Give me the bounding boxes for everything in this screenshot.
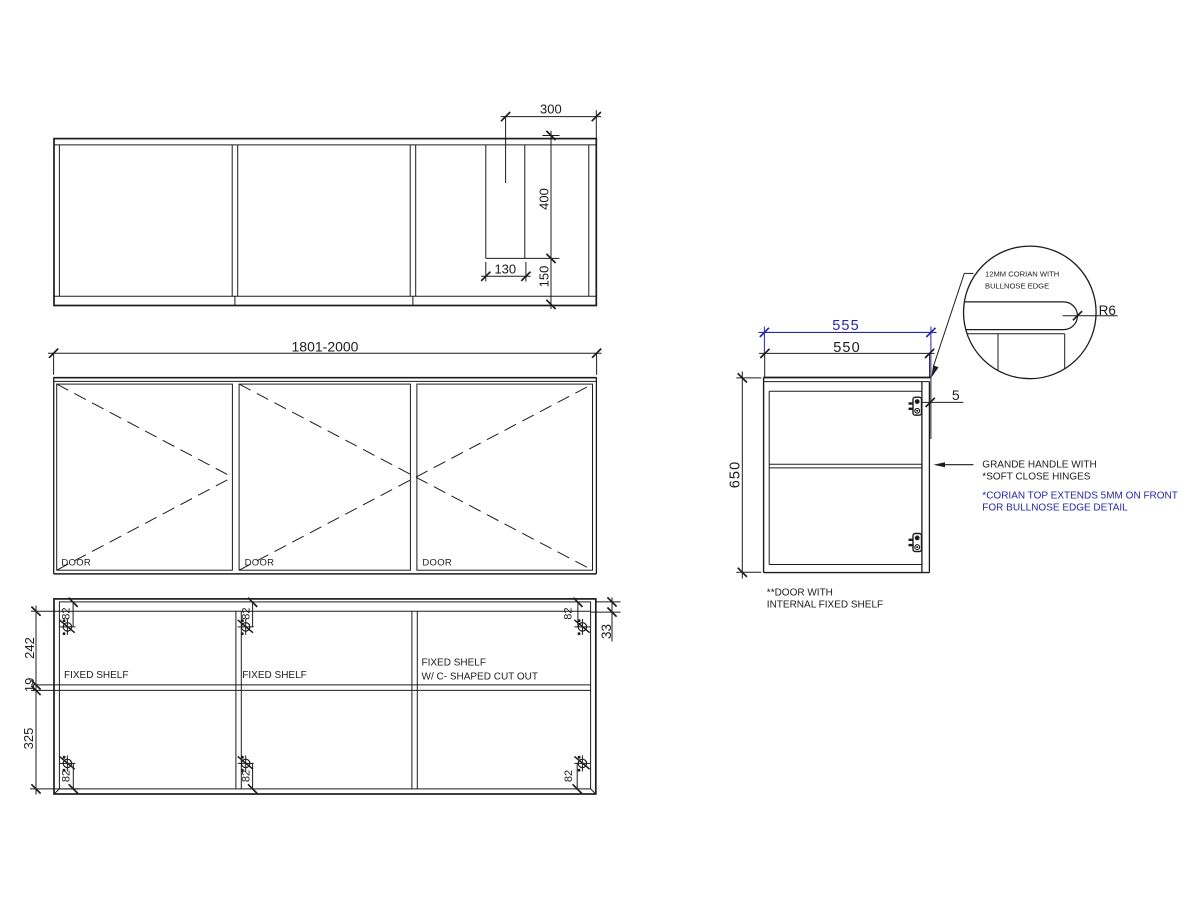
svg-text:130: 130 xyxy=(494,262,516,277)
svg-text:5: 5 xyxy=(952,387,960,403)
svg-text:242: 242 xyxy=(22,637,37,659)
svg-text:R6: R6 xyxy=(1099,303,1116,318)
svg-text:82: 82 xyxy=(563,770,575,782)
svg-text:650: 650 xyxy=(728,461,744,489)
svg-text:1801-2000: 1801-2000 xyxy=(292,339,359,355)
svg-text:33: 33 xyxy=(599,624,614,639)
svg-text:DOOR: DOOR xyxy=(61,557,91,568)
svg-text:BULLNOSE EDGE: BULLNOSE EDGE xyxy=(985,282,1049,291)
svg-text:FIXED SHELF: FIXED SHELF xyxy=(64,670,128,681)
svg-text:FOR BULLNOSE EDGE DETAIL: FOR BULLNOSE EDGE DETAIL xyxy=(982,503,1128,514)
svg-text:GRANDE HANDLE WITH: GRANDE HANDLE WITH xyxy=(982,459,1096,470)
svg-text:300: 300 xyxy=(540,102,562,117)
svg-text:400: 400 xyxy=(537,188,552,210)
svg-text:150: 150 xyxy=(537,266,552,288)
svg-text:82: 82 xyxy=(60,607,72,619)
svg-text:**DOOR WITH: **DOOR WITH xyxy=(767,587,833,598)
svg-text:W/ C- SHAPED CUT OUT: W/ C- SHAPED CUT OUT xyxy=(422,671,538,682)
svg-text:*SOFT CLOSE HINGES: *SOFT CLOSE HINGES xyxy=(982,471,1091,482)
svg-text:FIXED SHELF: FIXED SHELF xyxy=(242,670,306,681)
svg-text:82: 82 xyxy=(241,607,253,619)
svg-text:19: 19 xyxy=(22,678,37,692)
svg-text:*CORIAN TOP EXTENDS 5MM ON FRO: *CORIAN TOP EXTENDS 5MM ON FRONT xyxy=(982,491,1178,502)
svg-text:12MM CORIAN WITH: 12MM CORIAN WITH xyxy=(985,270,1059,279)
svg-text:550: 550 xyxy=(833,340,861,356)
svg-text:82: 82 xyxy=(562,607,574,619)
svg-text:DOOR: DOOR xyxy=(245,557,275,568)
svg-text:FIXED SHELF: FIXED SHELF xyxy=(422,658,486,669)
svg-text:82: 82 xyxy=(61,770,73,782)
svg-text:DOOR: DOOR xyxy=(422,557,452,568)
svg-text:325: 325 xyxy=(21,728,36,750)
svg-text:INTERNAL FIXED SHELF: INTERNAL FIXED SHELF xyxy=(767,600,883,611)
svg-text:82: 82 xyxy=(241,770,253,782)
svg-text:555: 555 xyxy=(832,318,860,334)
